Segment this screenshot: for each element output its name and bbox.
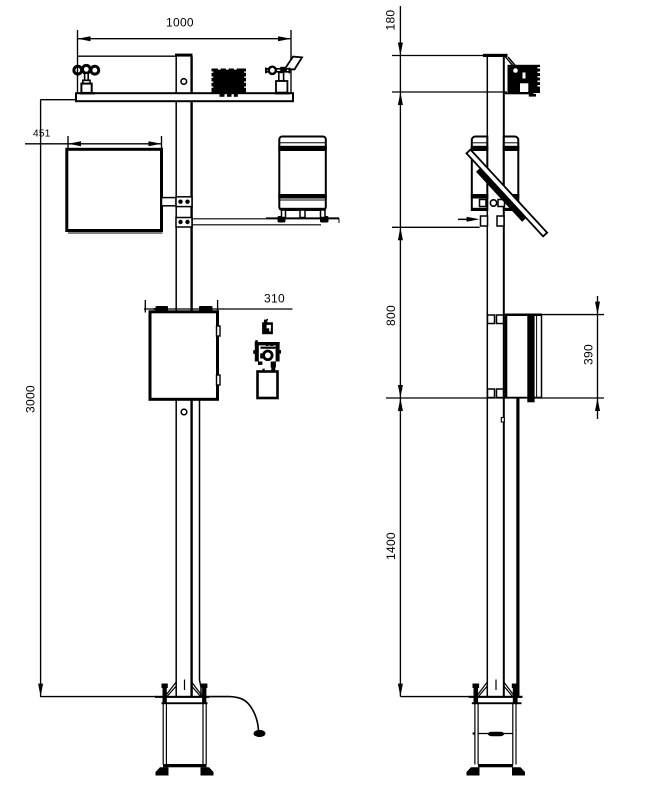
svg-text:800: 800 [384,305,398,326]
svg-text:310: 310 [264,292,285,306]
svg-text:390: 390 [582,344,596,365]
svg-text:3000: 3000 [24,385,38,413]
svg-text:451: 451 [33,129,51,140]
svg-text:1400: 1400 [384,532,398,560]
svg-text:180: 180 [384,10,398,31]
svg-text:1000: 1000 [166,16,194,30]
